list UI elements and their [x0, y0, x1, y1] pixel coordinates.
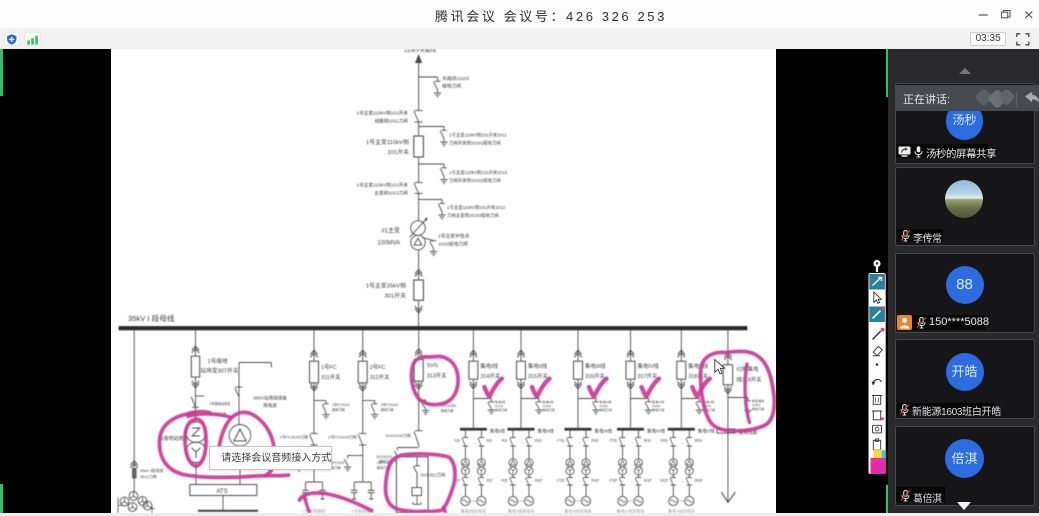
- svg-text:35kV I 段母线: 35kV I 段母线: [128, 313, 175, 323]
- svg-text:...: ...: [578, 438, 581, 443]
- svg-text:1号接地站用变: 1号接地站用变: [210, 401, 232, 406]
- svg-text:集电I线: 集电I线: [480, 361, 498, 369]
- svg-text:32QF: 32QF: [644, 478, 652, 482]
- svg-text:#1主变: #1主变: [381, 226, 400, 234]
- svg-text:接地刀闸: 接地刀闸: [381, 407, 394, 412]
- svg-text:天威线11103: 天威线11103: [442, 75, 469, 82]
- svg-text:17QF: 17QF: [557, 478, 565, 482]
- svg-text:27QL: 27QL: [609, 438, 617, 442]
- svg-text:...: ...: [631, 478, 634, 483]
- svg-text:2号FC31101: 2号FC31101: [381, 402, 399, 407]
- svg-text:接地刀闸: 接地刀闸: [652, 407, 664, 412]
- svg-text:35kV I段母线: 35kV I段母线: [140, 467, 163, 473]
- svg-text:接地刀闸: 接地刀闸: [442, 82, 461, 89]
- svg-text:...: ...: [521, 438, 524, 443]
- svg-text:311开关: 311开关: [321, 373, 341, 381]
- svg-text:16QF: 16QF: [534, 478, 542, 482]
- svg-text:线路侧1011刀闸: 线路侧1011刀闸: [374, 117, 408, 124]
- svg-text:32QL: 32QL: [644, 438, 652, 442]
- svg-text:301开关: 301开关: [384, 291, 406, 299]
- svg-text:集电V线: 集电V线: [698, 427, 715, 434]
- svg-text:1号接地: 1号接地: [208, 357, 229, 365]
- svg-text:8QF: 8QF: [486, 478, 493, 482]
- svg-text:9QL: 9QL: [502, 438, 509, 442]
- svg-text:...: ...: [521, 478, 524, 483]
- svg-text:刀闸主变侧10103接地刀闸: 刀闸主变侧10103接地刀闸: [447, 211, 499, 218]
- svg-text:集电IV线: 集电IV线: [638, 361, 660, 369]
- svg-text:站用变307开关: 站用变307开关: [201, 366, 239, 374]
- svg-text:33QL: 33QL: [660, 438, 668, 442]
- svg-text:313开关: 313开关: [427, 371, 447, 379]
- svg-text:接地刀闸: 接地刀闸: [441, 408, 454, 413]
- svg-text:9QF: 9QF: [501, 478, 508, 482]
- svg-text:主变侧1013刀闸: 主变侧1013刀闸: [374, 189, 408, 196]
- svg-text:1号FC31101: 1号FC31101: [332, 402, 350, 407]
- svg-text:...: ...: [681, 478, 684, 483]
- svg-text:38QL: 38QL: [694, 438, 702, 442]
- svg-text:集电IV线: 集电IV线: [647, 427, 666, 434]
- svg-text:集电II线: 集电II线: [528, 361, 548, 369]
- svg-text:8QL: 8QL: [486, 438, 493, 442]
- svg-text:集电III线: 集电III线: [595, 427, 613, 434]
- svg-text:...: ...: [631, 438, 634, 443]
- svg-text:317开关: 317开关: [638, 371, 658, 379]
- svg-text:1号主变110kV侧101开关1013: 1号主变110kV侧101开关1013: [447, 204, 506, 211]
- svg-text:1号主变110kV侧101开关: 1号主变110kV侧101开关: [357, 181, 409, 188]
- svg-text:27QF: 27QF: [609, 478, 617, 482]
- svg-text:用电源: 用电源: [263, 402, 277, 409]
- svg-text:SVG: SVG: [427, 363, 438, 369]
- svg-text:...: ...: [681, 438, 684, 443]
- svg-text:接地刀闸: 接地刀闸: [600, 407, 612, 412]
- svg-text:接地刀闸: 接地刀闸: [543, 407, 555, 412]
- svg-text:1号主变110kV侧101开关: 1号主变110kV侧101开关: [357, 109, 409, 116]
- svg-text:线319开关: 线319开关: [736, 375, 762, 383]
- svg-text:314开关: 314开关: [480, 371, 500, 379]
- svg-text:1号主变110kV侧101开关1011: 1号主变110kV侧101开关1011: [449, 131, 507, 138]
- svg-text:26QF: 26QF: [591, 478, 599, 482]
- svg-text:101开关: 101开关: [387, 147, 409, 155]
- svg-text:集电III线: 集电III线: [585, 361, 606, 369]
- svg-text:100MVA: 100MVA: [377, 240, 400, 246]
- svg-text:1号主变中性点: 1号主变中性点: [438, 232, 470, 239]
- svg-text:26QL: 26QL: [591, 438, 599, 442]
- svg-text:38QF: 38QF: [694, 478, 702, 482]
- svg-text:SVG3135刀闸: SVG3135刀闸: [385, 432, 410, 438]
- svg-text:集电I线: 集电I线: [490, 427, 505, 434]
- svg-text:集电V线: 集电V线: [688, 361, 708, 369]
- svg-text:1号主变35kV侧: 1号主变35kV侧: [366, 281, 406, 289]
- svg-text:ATS: ATS: [216, 488, 227, 494]
- svg-text:接地刀闸: 接地刀闸: [495, 407, 507, 412]
- svg-text:接地刀闸: 接地刀闸: [332, 407, 345, 412]
- svg-text:1号FC3125刀闸: 1号FC3125刀闸: [280, 433, 308, 439]
- svg-text:刀闸开关侧10102接地刀闸: 刀闸开关侧10102接地刀闸: [449, 176, 501, 183]
- svg-text:16QL: 16QL: [534, 438, 542, 442]
- svg-text:110kV天威线: 110kV天威线: [404, 49, 437, 54]
- svg-text:1010接地刀闸: 1010接地刀闸: [438, 240, 468, 247]
- svg-text:1QL: 1QL: [454, 438, 461, 442]
- svg-text:316开关: 316开关: [585, 371, 605, 379]
- svg-text:接地刀闸: 接地刀闸: [752, 406, 764, 411]
- svg-text:312开关: 312开关: [370, 373, 390, 381]
- svg-text:...: ...: [578, 478, 581, 483]
- svg-text:...: ...: [473, 478, 476, 483]
- svg-text:...: ...: [473, 438, 476, 443]
- svg-text:315开关: 315开关: [528, 371, 548, 379]
- svg-text:380V站用母线备: 380V站用母线备: [253, 394, 287, 401]
- svg-text:集电II线: 集电II线: [538, 427, 555, 434]
- svg-text:3611刀闸: 3611刀闸: [140, 473, 157, 479]
- svg-text:17QL: 17QL: [557, 438, 565, 442]
- svg-text:2号FC3125刀闸: 2号FC3125刀闸: [328, 433, 356, 439]
- svg-text:33QF: 33QF: [660, 478, 668, 482]
- svg-text:2号FC: 2号FC: [370, 363, 386, 370]
- svg-text:SVG321刀闸: SVG321刀闸: [421, 471, 446, 478]
- svg-text:318开关: 318开关: [688, 371, 708, 379]
- svg-text:刀闸开关侧10101接地刀闸: 刀闸开关侧10101接地刀闸: [449, 139, 501, 146]
- svg-text:1号FC: 1号FC: [321, 363, 337, 370]
- svg-text:1号主变110kV侧: 1号主变110kV侧: [366, 137, 409, 145]
- svg-text:1号主变110kV侧101开关1013: 1号主变110kV侧101开关1013: [449, 169, 508, 176]
